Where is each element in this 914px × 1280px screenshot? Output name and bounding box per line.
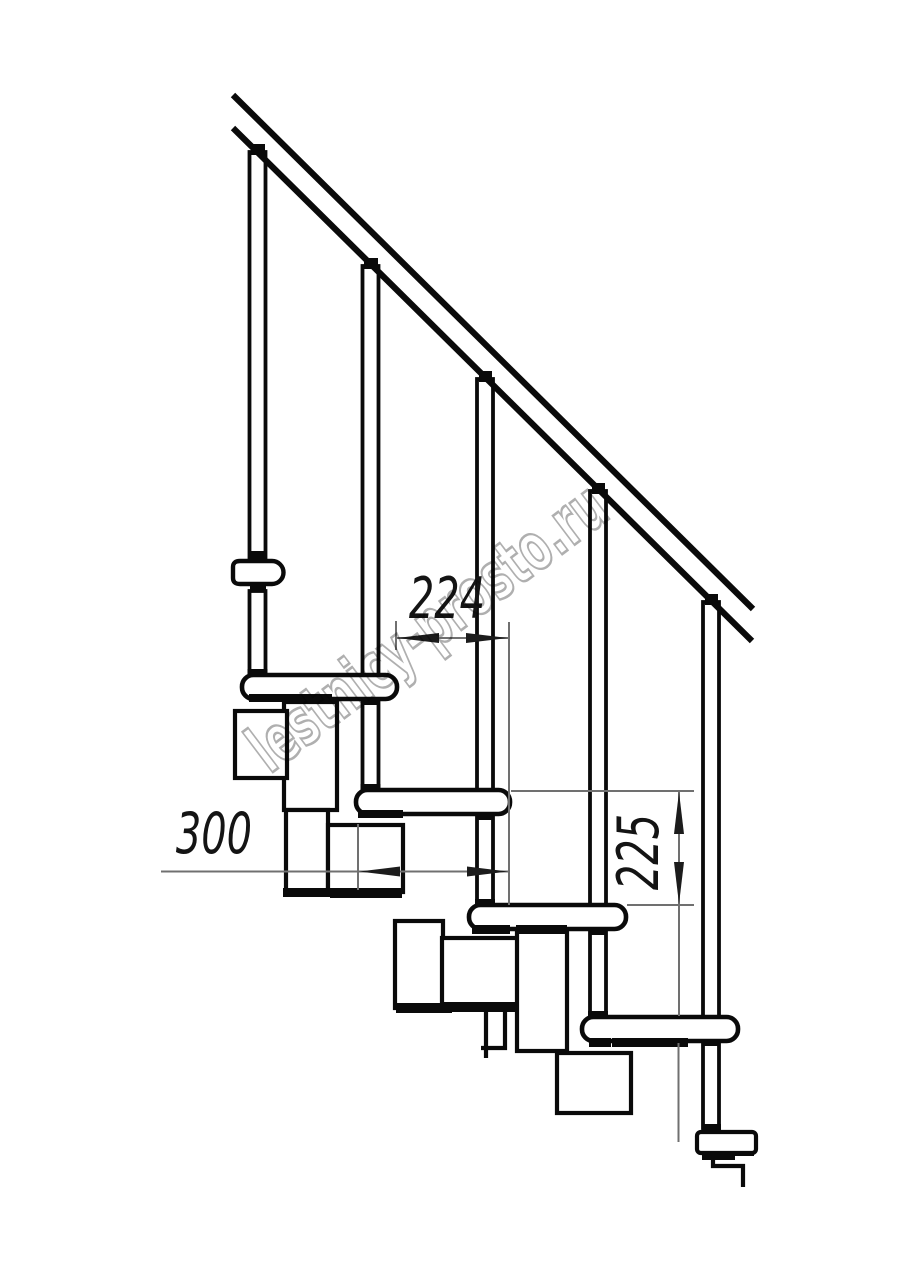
baluster-4-lower-segment <box>590 929 606 1020</box>
dimension-label-step-rise: 225 <box>610 810 668 894</box>
dim-225-arrow-up <box>674 792 684 834</box>
tread-3 <box>469 905 626 934</box>
module-under-tread-2-foot <box>330 888 402 898</box>
staircase-drawing-canvas: 224 300 225 lestnicy-prosto.ru <box>0 0 914 1280</box>
baluster-1-lower-segment <box>250 591 266 677</box>
module-under-tread-3-upper <box>395 921 443 1008</box>
baluster-5-lower-segment <box>703 1040 719 1128</box>
base-plate-foot-2 <box>735 1151 754 1156</box>
baluster-5-upper-segment <box>703 602 719 1018</box>
module-under-tread-1-lower <box>286 810 328 893</box>
tread-2 <box>356 790 510 818</box>
tread-4 <box>582 1017 738 1047</box>
module-under-tread-3-lower-foot <box>443 1002 520 1012</box>
base-plate-foot <box>702 1151 735 1160</box>
floor-truncation-zigzag <box>713 1159 743 1187</box>
baluster-2-upper-segment <box>363 266 379 677</box>
module-under-tread-4 <box>517 930 567 1051</box>
baluster-1-upper-segment <box>250 152 266 564</box>
module-under-tread-5-truncated <box>557 1053 631 1113</box>
baluster-4-upper-segment <box>590 491 606 907</box>
tread-4-plate <box>582 1017 738 1041</box>
upper-tread-end-collar <box>233 561 284 584</box>
tread-3-underside-foot <box>472 925 510 934</box>
baluster-3-lower-segment <box>477 814 493 907</box>
tread-2-underside-strip <box>358 810 403 818</box>
tread-4-underside-strip <box>612 1038 688 1047</box>
tread-4-underside-foot <box>589 1038 611 1047</box>
baluster-5 <box>702 594 721 1133</box>
tread-3-underside-strip <box>516 925 567 934</box>
base-plate <box>697 1132 756 1153</box>
dim-225-arrow-down <box>674 862 684 904</box>
baluster-4 <box>588 483 608 1020</box>
dimension-label-tread-length: 300 <box>172 805 256 863</box>
module-under-tread-3-lower <box>442 938 518 1007</box>
baluster-1 <box>233 144 284 677</box>
base-support <box>697 1132 756 1187</box>
module-under-tread-2 <box>328 825 403 892</box>
